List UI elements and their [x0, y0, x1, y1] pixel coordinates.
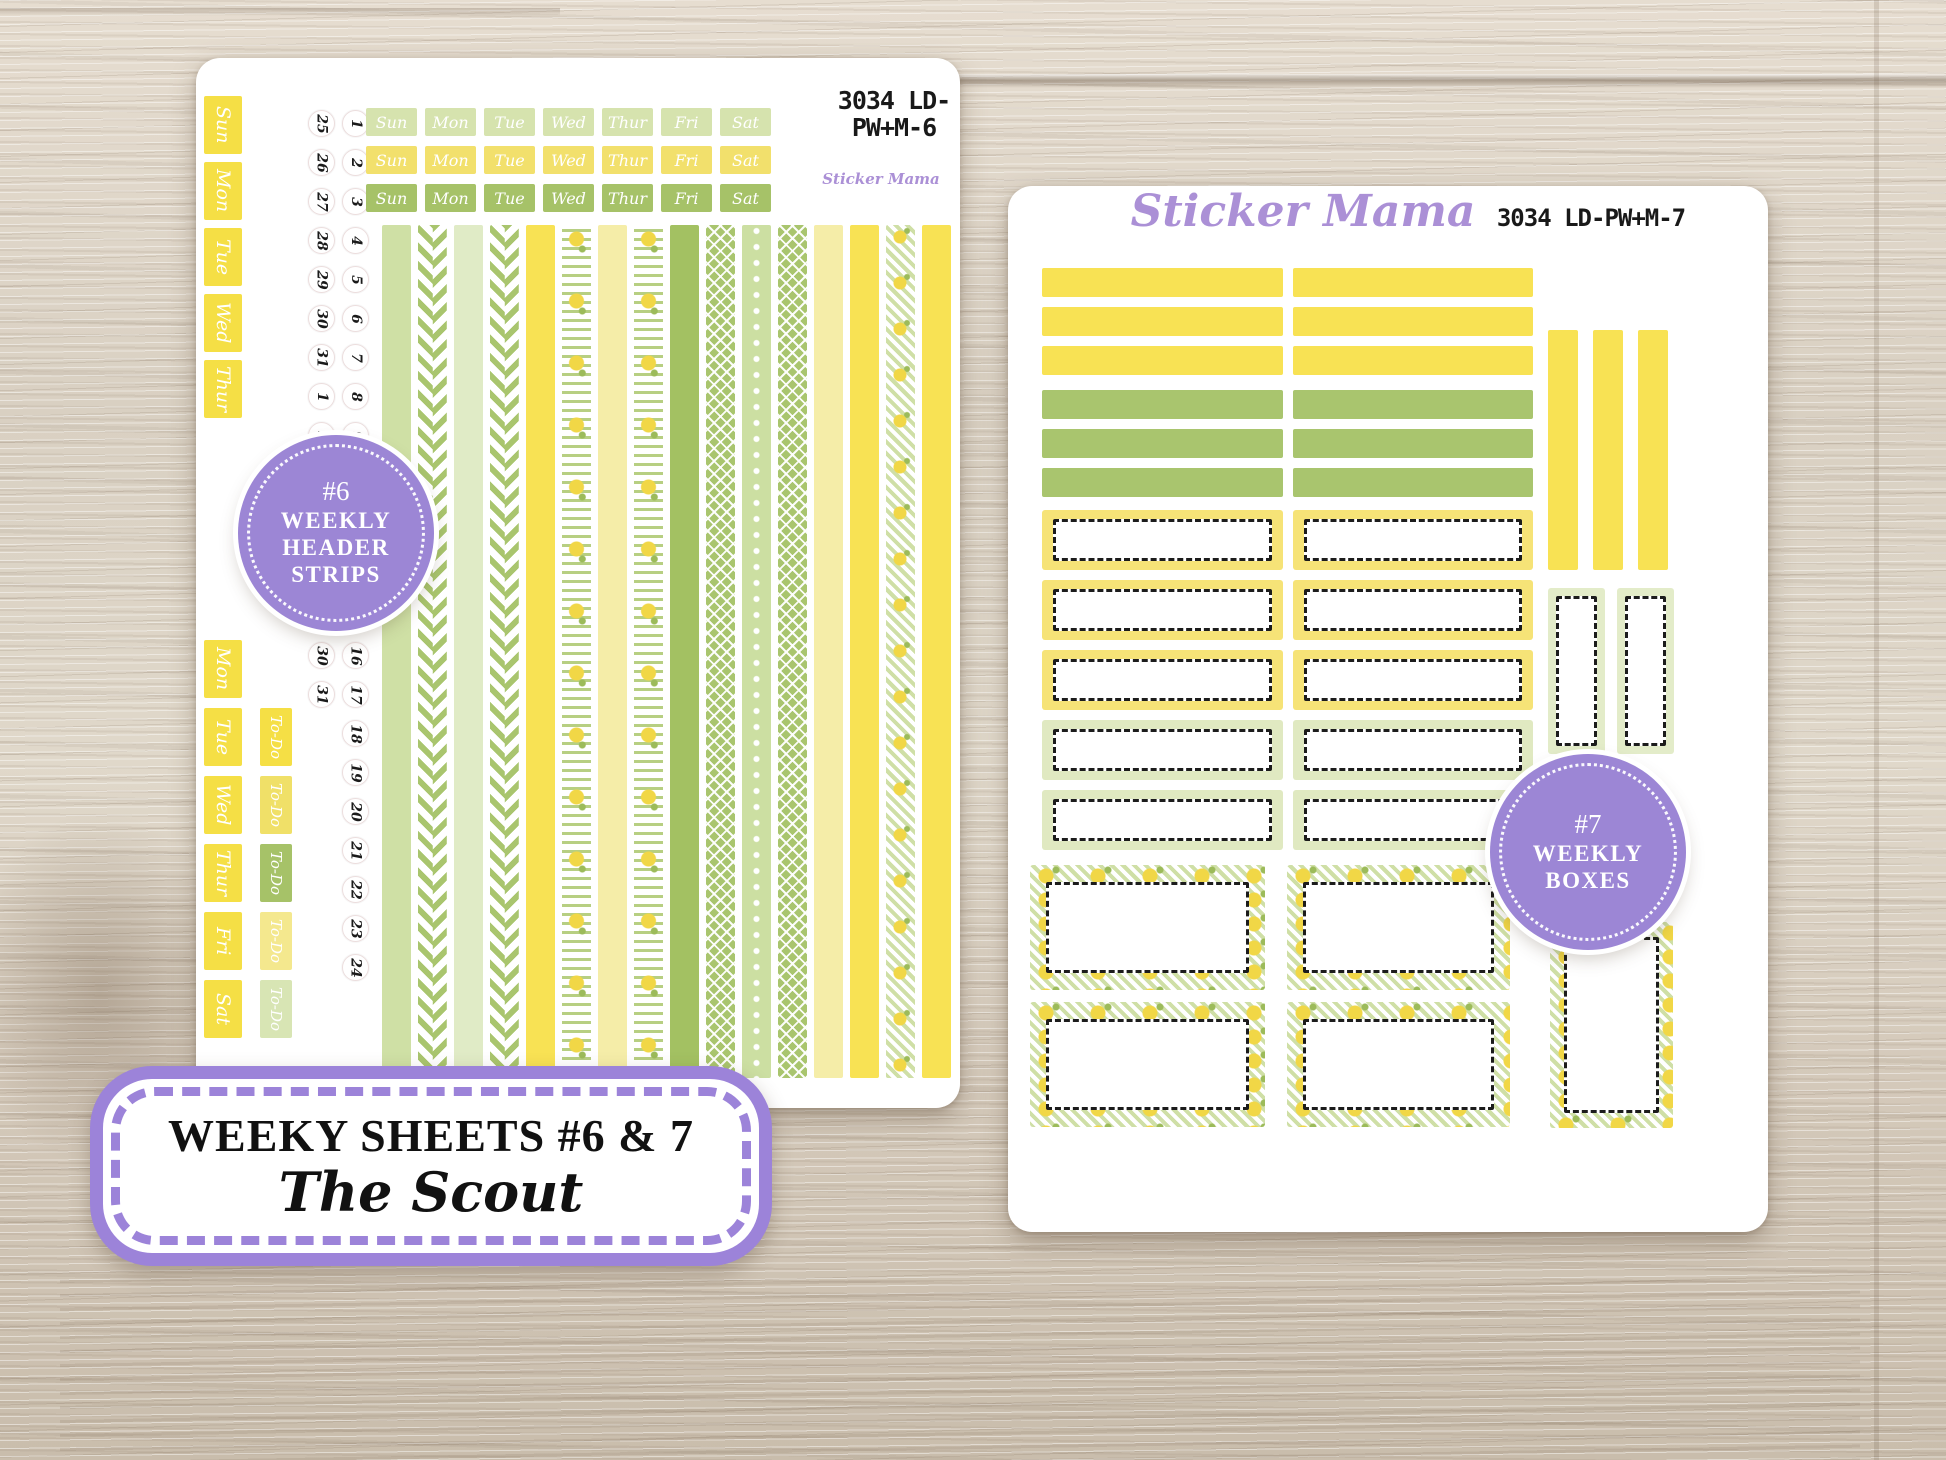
date-dots-column-a-bottom: 3031	[308, 642, 336, 708]
narrow-box-sticker	[1548, 588, 1605, 754]
lemon-half-box-sticker	[1287, 1002, 1510, 1127]
lemon-tall-box-sticker	[1550, 922, 1673, 1128]
writing-area	[1304, 589, 1522, 631]
label-box-column-1	[1042, 510, 1283, 850]
day-header-sticker: Tue	[484, 108, 535, 136]
washi-strip-sticker	[562, 225, 591, 1078]
wood-plank-seam	[1874, 0, 1879, 1460]
header-strip-sticker	[1042, 307, 1283, 336]
day-tab-sticker: Wed	[204, 294, 242, 352]
brand-signature: Sticker Mama	[806, 170, 956, 188]
day-header-sticker: Thur	[602, 146, 653, 174]
day-tab-sticker: Fri	[204, 912, 242, 970]
lemon-half-box-sticker	[1030, 1002, 1265, 1127]
washi-strip-sticker	[598, 225, 627, 1078]
writing-area	[1046, 1019, 1249, 1110]
sheet-code-line1: 3034 LD-	[832, 88, 956, 115]
badge-text: STRIPS	[291, 561, 381, 588]
sheet-code: 3034 LD- PW+M-6	[832, 88, 956, 141]
label-box-column-2	[1293, 510, 1533, 850]
date-dot-sticker: 22	[342, 876, 369, 903]
label-box-sticker	[1042, 720, 1283, 780]
writing-area	[1625, 596, 1666, 746]
day-tab-column-bottom: MonTueWedThurFriSat	[204, 640, 244, 1038]
day-header-sticker: Sun	[366, 146, 417, 174]
date-dot-sticker: 31	[308, 344, 335, 371]
washi-strip-sticker	[634, 225, 663, 1078]
product-subtitle: The Scout	[279, 1160, 584, 1224]
day-header-sticker: Tue	[484, 146, 535, 174]
date-dot-sticker: 29	[308, 266, 335, 293]
sticker-sheet-6: SunMonTueWedThur MonTueWedThurFriSat To-…	[196, 58, 960, 1108]
header-strip-sticker	[1293, 468, 1533, 497]
date-dot-sticker: 21	[342, 837, 369, 864]
date-dot-sticker: 16	[342, 642, 369, 669]
date-dots-column-b-bottom: 161718192021222324	[342, 642, 370, 981]
badge-number: #6	[323, 477, 350, 507]
day-header-sticker: Thur	[602, 108, 653, 136]
product-title: WEEKY SHEETS #6 & 7	[168, 1109, 694, 1162]
strip-column-2	[1293, 268, 1533, 497]
day-header-sticker: Wed	[543, 184, 594, 212]
date-dot-sticker: 27	[308, 188, 335, 215]
date-dot-sticker: 24	[342, 954, 369, 981]
date-dot-sticker: 1	[308, 383, 335, 410]
date-dot-sticker: 20	[342, 798, 369, 825]
label-box-sticker	[1042, 510, 1283, 570]
washi-strip-sticker	[922, 225, 951, 1078]
sheet-code: 3034 LD-PW+M-7	[1476, 204, 1706, 232]
date-dot-sticker: 31	[308, 681, 335, 708]
product-title-dashed-frame: WEEKY SHEETS #6 & 7 The Scout	[111, 1087, 751, 1245]
label-box-sticker	[1293, 650, 1533, 710]
day-header-sticker: Sat	[720, 108, 771, 136]
vertical-bar-sticker	[1638, 330, 1668, 570]
label-box-sticker	[1293, 580, 1533, 640]
day-header-sticker: Sun	[366, 184, 417, 212]
day-tab-sticker: Sun	[204, 96, 242, 154]
side-box-group	[1548, 588, 1674, 754]
day-tab-sticker: Mon	[204, 162, 242, 220]
todo-tab-sticker: To-Do	[260, 708, 292, 766]
day-header-sticker: Fri	[661, 184, 712, 212]
washi-strip-sticker	[742, 225, 771, 1078]
day-header-sticker: Tue	[484, 184, 535, 212]
todo-tab-sticker: To-Do	[260, 844, 292, 902]
writing-area	[1053, 799, 1272, 841]
vertical-bar-sticker	[1548, 330, 1578, 570]
date-dot-sticker: 3	[342, 188, 369, 215]
date-dot-sticker: 1	[342, 110, 369, 137]
date-dot-sticker: 4	[342, 227, 369, 254]
writing-area	[1053, 659, 1272, 701]
date-dot-sticker: 17	[342, 681, 369, 708]
todo-tab-sticker: To-Do	[260, 912, 292, 970]
washi-strip-sticker	[886, 225, 915, 1078]
day-header-sticker: Sat	[720, 146, 771, 174]
header-strip-sticker	[1293, 429, 1533, 458]
sticker-sheet-7: Sticker Mama 3034 LD-PW+M-7	[1008, 186, 1768, 1232]
writing-area	[1556, 596, 1597, 746]
date-dot-sticker: 23	[342, 915, 369, 942]
day-tab-sticker: Thur	[204, 360, 242, 418]
date-dot-sticker: 25	[308, 110, 335, 137]
day-header-sticker: Sat	[720, 184, 771, 212]
day-header-sticker: Wed	[543, 108, 594, 136]
brand-signature: Sticker Mama	[1078, 186, 1528, 237]
day-header-sticker: Sun	[366, 108, 417, 136]
badge-text: HEADER	[282, 534, 389, 561]
label-box-sticker	[1293, 510, 1533, 570]
washi-strip-sticker	[526, 225, 555, 1078]
header-strip-sticker	[1293, 346, 1533, 375]
date-dot-sticker: 8	[342, 383, 369, 410]
washi-strip-sticker	[418, 225, 447, 1078]
writing-area	[1304, 729, 1522, 771]
date-dot-sticker: 5	[342, 266, 369, 293]
date-dot-sticker: 7	[342, 344, 369, 371]
washi-strip-sticker	[706, 225, 735, 1078]
todo-tab-column: To-DoTo-DoTo-DoTo-DoTo-Do	[260, 708, 294, 1038]
date-dot-sticker: 26	[308, 149, 335, 176]
writing-area	[1053, 519, 1272, 561]
washi-strip-sticker	[490, 225, 519, 1078]
header-strip-sticker	[1042, 429, 1283, 458]
date-dot-sticker: 19	[342, 759, 369, 786]
writing-area	[1564, 937, 1659, 1113]
header-strip-sticker	[1042, 468, 1283, 497]
header-strip-sticker	[1293, 307, 1533, 336]
vertical-bar-group	[1548, 330, 1668, 570]
day-header-sticker: Fri	[661, 108, 712, 136]
label-box-sticker	[1042, 580, 1283, 640]
date-dot-sticker: 18	[342, 720, 369, 747]
badge-weekly-boxes: #7 WEEKLY BOXES	[1490, 754, 1686, 950]
day-tab-sticker: Tue	[204, 228, 242, 286]
writing-area	[1303, 882, 1494, 973]
lemon-box-column-1	[1030, 865, 1265, 1127]
writing-area	[1053, 589, 1272, 631]
badge-text: WEEKLY	[1533, 840, 1643, 867]
date-dot-sticker: 30	[308, 642, 335, 669]
washi-strip-sticker	[814, 225, 843, 1078]
product-title-box: WEEKY SHEETS #6 & 7 The Scout	[90, 1066, 772, 1266]
date-dots-column-a-top: 2526272829303112	[308, 110, 336, 449]
day-header-sticker: Mon	[425, 184, 476, 212]
writing-area	[1303, 1019, 1494, 1110]
label-box-sticker	[1042, 650, 1283, 710]
day-header-sticker: Fri	[661, 146, 712, 174]
sheet-code-line2: PW+M-6	[832, 115, 956, 142]
day-header-sticker: Wed	[543, 146, 594, 174]
narrow-box-sticker	[1617, 588, 1674, 754]
lemon-half-box-sticker	[1287, 865, 1510, 990]
todo-tab-sticker: To-Do	[260, 776, 292, 834]
day-header-sticker: Mon	[425, 108, 476, 136]
day-header-sticker: Thur	[602, 184, 653, 212]
date-dot-sticker: 6	[342, 305, 369, 332]
washi-strip-group	[382, 225, 951, 1078]
lemon-box-column-2	[1287, 865, 1510, 1127]
header-strip-sticker	[1042, 268, 1283, 297]
date-dot-sticker: 30	[308, 305, 335, 332]
badge-text: WEEKLY	[281, 507, 391, 534]
washi-strip-sticker	[454, 225, 483, 1078]
header-strip-sticker	[1293, 390, 1533, 419]
wood-dark-patch	[60, 1280, 1860, 1460]
date-dot-sticker: 28	[308, 227, 335, 254]
day-tab-sticker: Mon	[204, 640, 242, 698]
label-box-sticker	[1042, 790, 1283, 850]
writing-area	[1304, 519, 1522, 561]
day-tab-sticker: Sat	[204, 980, 242, 1038]
badge-text: BOXES	[1545, 867, 1630, 894]
day-tab-sticker: Tue	[204, 708, 242, 766]
wood-plank-seam	[0, 8, 560, 16]
washi-strip-sticker	[382, 225, 411, 1078]
badge-weekly-header-strips: #6 WEEKLY HEADER STRIPS	[238, 435, 434, 631]
writing-area	[1046, 882, 1249, 973]
writing-area	[1304, 799, 1522, 841]
lemon-half-box-sticker	[1030, 865, 1265, 990]
label-box-sticker	[1293, 720, 1533, 780]
washi-strip-sticker	[850, 225, 879, 1078]
todo-tab-sticker: To-Do	[260, 980, 292, 1038]
writing-area	[1053, 729, 1272, 771]
washi-strip-sticker	[778, 225, 807, 1078]
header-strip-sticker	[1042, 390, 1283, 419]
badge-number: #7	[1575, 810, 1602, 840]
header-strip-sticker	[1042, 346, 1283, 375]
weekly-header-sticker-grid: SunMonTueWedThurFriSatSunMonTueWedThurFr…	[366, 108, 771, 212]
day-header-sticker: Mon	[425, 146, 476, 174]
writing-area	[1304, 659, 1522, 701]
strip-column-1	[1042, 268, 1283, 497]
header-strip-sticker	[1293, 268, 1533, 297]
day-tab-column-top: SunMonTueWedThur	[204, 96, 244, 418]
day-tab-sticker: Wed	[204, 776, 242, 834]
washi-strip-sticker	[670, 225, 699, 1078]
vertical-bar-sticker	[1593, 330, 1623, 570]
day-tab-sticker: Thur	[204, 844, 242, 902]
date-dot-sticker: 2	[342, 149, 369, 176]
